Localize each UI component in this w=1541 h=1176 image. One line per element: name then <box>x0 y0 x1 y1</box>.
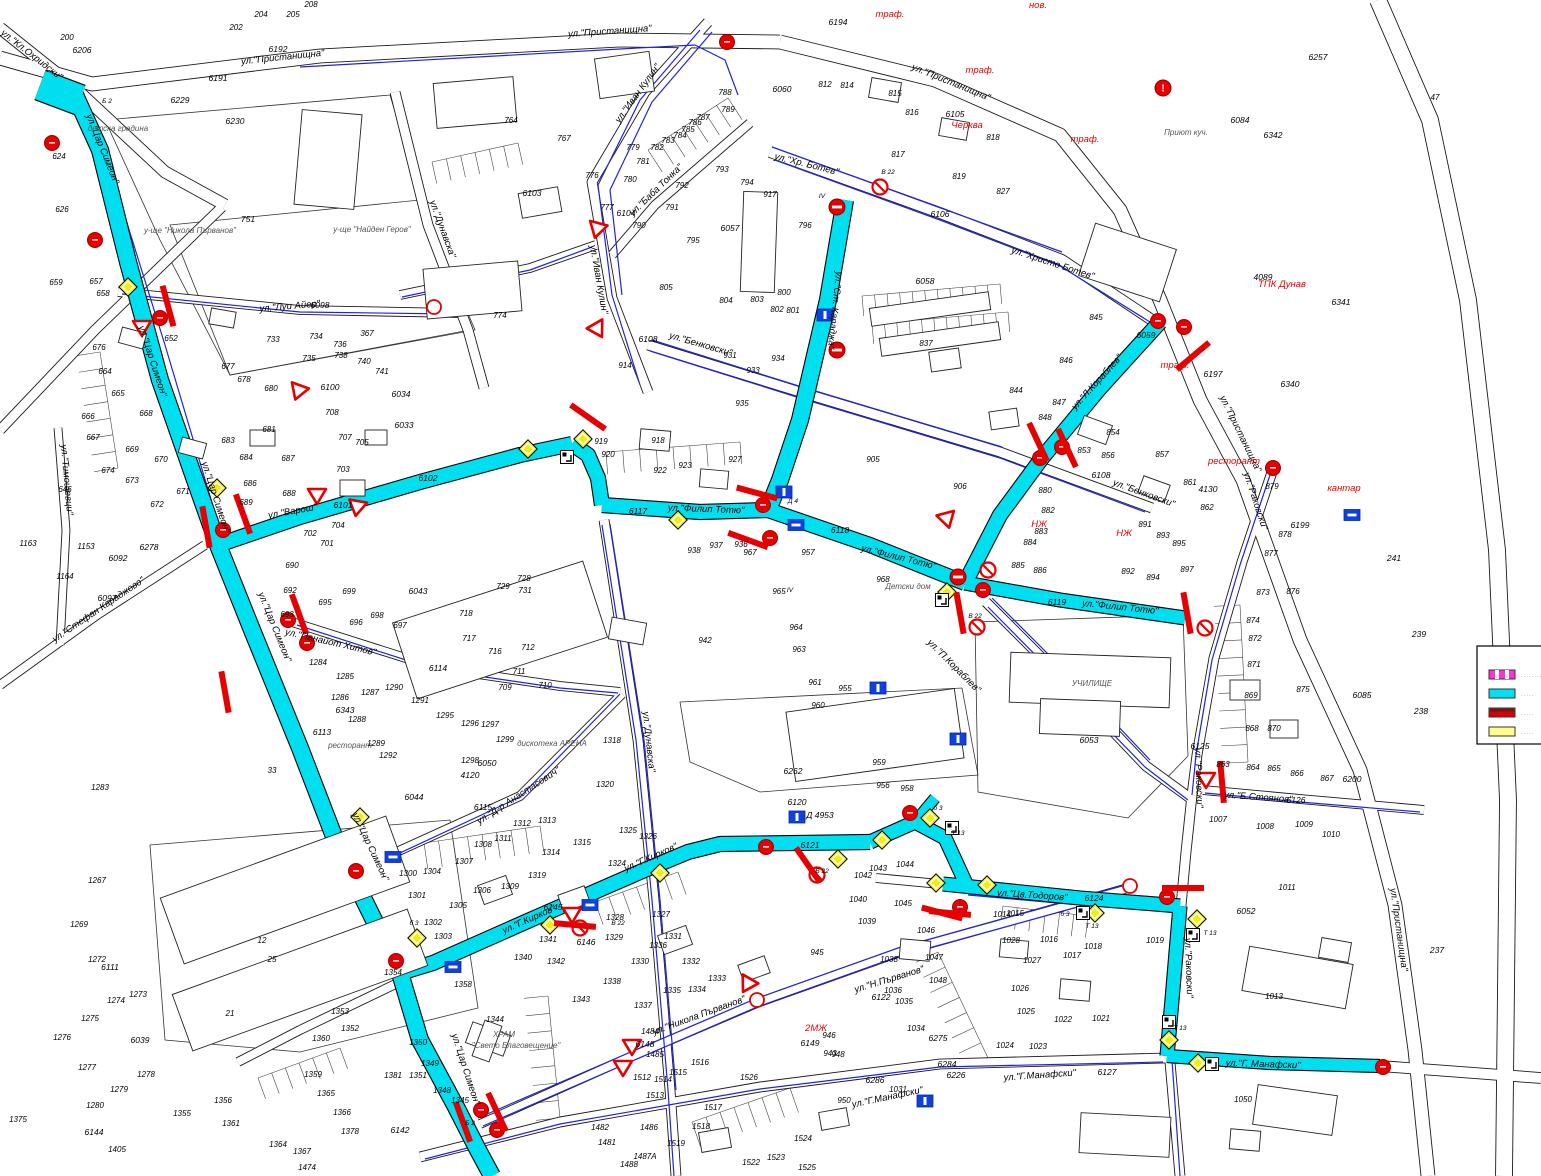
street-name-label: ул."Раковски" <box>1192 747 1205 809</box>
parcel-number-label: 1153 <box>77 542 95 551</box>
parcel-number-label: 1267 <box>88 876 106 885</box>
parcel-number-label: 1329 <box>605 933 623 942</box>
parcel-number-label: 25 <box>267 955 277 964</box>
parcel-number-label: 1015 <box>1006 909 1024 918</box>
sign-glyph <box>796 813 799 821</box>
sign-code-label: б 3 <box>409 919 418 927</box>
map-legend: · ························ <box>1477 646 1541 744</box>
parcel-number-label: 1348 <box>433 1086 451 1095</box>
layer-leg: · ························ <box>1477 646 1541 744</box>
parcel-number-label: 1022 <box>1054 1015 1072 1024</box>
road-closure-bar <box>1162 885 1204 891</box>
parcel-number-label: 938 <box>687 546 701 555</box>
parcel-number-label: 817 <box>891 150 905 159</box>
parcel-number-label: 950 <box>837 1096 851 1105</box>
parcel-number-label: 708 <box>325 408 339 417</box>
parcel-number-label: 1523 <box>767 1153 785 1162</box>
parcel-number-label: 1327 <box>652 910 670 919</box>
parcel-number-label: 1017 <box>1063 951 1081 960</box>
sign-glyph <box>49 142 55 144</box>
parcel-number-label: 869 <box>1244 691 1258 700</box>
street-code-label: 6050 <box>478 758 497 768</box>
parcel-number-label: 705 <box>355 438 369 447</box>
street-code-label: 6114 <box>429 663 448 673</box>
parcel-number-label: 1311 <box>494 834 511 843</box>
parcel-number-label: 1279 <box>110 1085 128 1094</box>
parcel-number-label: 1306 <box>473 886 491 895</box>
poi-label: "Свето Благовещение" <box>472 1041 562 1050</box>
parcel-number-label: 733 <box>266 335 280 344</box>
sign-glyph <box>449 966 458 969</box>
parcel-number-label: 1353 <box>331 1007 349 1016</box>
parcel-number-label: 33 <box>268 766 277 775</box>
parcel-number-label: 931 <box>723 351 736 360</box>
parcel-number-label: 845 <box>1089 313 1103 322</box>
parcel-number-label: 1305 <box>449 901 467 910</box>
parcel-number-label: 1295 <box>436 711 454 720</box>
sign-code-label: Т 13 <box>1173 1025 1186 1032</box>
parcel-number-label: 1272 <box>88 955 106 964</box>
legend-swatch-shade <box>1490 709 1514 712</box>
parcel-number-label: 920 <box>601 450 615 459</box>
street-code-label: 6197 <box>1204 369 1223 379</box>
street-code-label: 6039 <box>131 1035 150 1045</box>
parcel-number-label: 664 <box>98 367 112 376</box>
parcel-number-label: 957 <box>801 548 815 557</box>
cadastral-map-view[interactable]: !ул."Кл.Охридски"ул."Пристанищна"ул."При… <box>0 0 1541 1176</box>
sign-glyph <box>563 453 567 457</box>
parcel-number-label: 919 <box>594 437 608 446</box>
parcel-number-label: 702 <box>303 529 317 538</box>
legend-swatch-yellow <box>1489 727 1515 736</box>
parcel-number-label: 1036 <box>884 986 902 995</box>
parcel-number-label: 673 <box>125 476 139 485</box>
building-footprint <box>929 348 961 372</box>
parcel-number-label: 933 <box>746 366 760 375</box>
parcel-number-label: 1326 <box>639 832 657 841</box>
parcel-number-label: 712 <box>521 643 535 652</box>
parcel-number-label: 1360 <box>312 1034 330 1043</box>
parcel-number-label: 848 <box>1038 413 1052 422</box>
street-code-label: 4130 <box>1199 484 1218 494</box>
parcel-number-label: 804 <box>719 296 733 305</box>
parcel-number-label: 1034 <box>907 1024 925 1033</box>
parcel-number-label: 1405 <box>108 1145 126 1154</box>
parcel-number-label: 873 <box>1256 588 1270 597</box>
street-name-label: ул."Раковски" <box>1182 937 1195 999</box>
parcel-number-label: 793 <box>715 165 729 174</box>
parcel-number-label: 891 <box>1138 520 1151 529</box>
street-code-label: 6098 <box>311 300 330 310</box>
legend-swatch-gap <box>1505 670 1509 679</box>
parcel-number-label: 967 <box>743 548 757 557</box>
parcel-number-label: 689 <box>239 498 253 507</box>
sign-glyph <box>948 824 952 828</box>
parcel-number-label: 1299 <box>496 735 514 744</box>
sign-glyph <box>389 856 398 859</box>
legend-swatch-magenta-dashed <box>1489 670 1515 679</box>
street-code-label: 6044 <box>405 792 424 802</box>
parcel-number-label: 707 <box>338 433 352 442</box>
street-code-label: 6145 <box>544 902 563 912</box>
street-code-label: 6127 <box>1098 1067 1117 1077</box>
street-code-label: 6092 <box>109 553 128 563</box>
parcel-number-label: 802 <box>770 305 784 314</box>
parcel-number-label: 914 <box>618 361 632 370</box>
parcel-number-label: 1488 <box>620 1160 638 1169</box>
sign-glyph <box>938 596 942 600</box>
parcel-number-label: 652 <box>164 334 178 343</box>
sign-glyph <box>907 812 913 814</box>
street-code-label: 6059 <box>1137 330 1156 340</box>
parcel-number-label: 717 <box>462 634 476 643</box>
parcel-number-label: 960 <box>811 701 825 710</box>
parcel-number-label: 956 <box>876 781 890 790</box>
parcel-number-label: 934 <box>771 354 785 363</box>
street-code-label: 237 <box>1429 945 1444 955</box>
parcel-number-label: 686 <box>243 479 257 488</box>
parcel-number-label: 709 <box>498 683 512 692</box>
street-code-label: 6118 <box>831 525 850 535</box>
parcel-number-label: 906 <box>953 482 967 491</box>
street-code-label: 6057 <box>721 223 740 233</box>
parcel-number-label: 1358 <box>454 980 472 989</box>
parcel-number-label: 1474 <box>298 1163 316 1172</box>
parcel-number-label: 704 <box>331 521 345 530</box>
parcel-number-label: 1337 <box>634 1001 652 1010</box>
street-code-label: 6341 <box>1332 297 1351 307</box>
parcel-number-label: 846 <box>1059 356 1073 365</box>
legend-swatch-cyan <box>1489 689 1515 698</box>
parcel-number-label: 1300 <box>399 869 417 878</box>
sign-glyph <box>760 504 766 506</box>
parcel-number-label: 678 <box>237 375 251 384</box>
parcel-number-label: 1315 <box>573 838 591 847</box>
street-code-label: 751 <box>241 214 255 224</box>
street-code-label: 6113 <box>313 727 332 737</box>
street-code-label: 6342 <box>1264 130 1283 140</box>
parcel-number-label: 874 <box>1246 616 1260 625</box>
parcel-number-label: 844 <box>1009 386 1023 395</box>
parcel-number-label: 862 <box>1200 503 1214 512</box>
parcel-number-label: 728 <box>517 574 531 583</box>
sign-code-label: Д 4 <box>787 498 798 505</box>
street-code-label: 6206 <box>73 45 92 55</box>
parcel-number-label: 780 <box>623 175 637 184</box>
parcel-number-label: 1344 <box>486 1015 504 1024</box>
parcel-number-label: 1296 <box>461 719 479 728</box>
parcel-number-label: 854 <box>1106 428 1120 437</box>
parcel-number-label: 690 <box>285 561 299 570</box>
sign-code-label: Б 2 <box>465 1120 475 1127</box>
street-code-label: 6102 <box>419 473 438 483</box>
parcel-number-label: 777 <box>600 203 614 212</box>
street-code-label: 6126 <box>1287 795 1306 805</box>
street-code-label: 6257 <box>1309 52 1328 62</box>
red-note-label: траф. <box>876 9 905 20</box>
parcel-number-label: 1324 <box>608 859 626 868</box>
sign-glyph <box>783 488 786 496</box>
street-code-label: 6284 <box>938 1059 957 1069</box>
street-code-label: 6192 <box>269 44 288 54</box>
parcel-number-label: 801 <box>786 306 799 315</box>
parcel-number-label: 1018 <box>1084 942 1102 951</box>
parcel-number-label: 1526 <box>740 1073 758 1082</box>
parcel-number-label: 208 <box>303 0 318 9</box>
parcel-number-label: 781 <box>636 157 649 166</box>
sign-glyph <box>393 960 399 962</box>
parcel-number-label: 1027 <box>1023 956 1041 965</box>
parcel-number-label: 923 <box>678 461 692 470</box>
street-code-label: 6120 <box>788 797 807 807</box>
parcel-number-label: 1364 <box>269 1140 287 1149</box>
parcel-number-label: 963 <box>792 645 806 654</box>
parcel-number-label: 857 <box>1155 450 1169 459</box>
sign-code-label: б 3 <box>933 804 942 812</box>
parcel-number-label: 880 <box>1038 486 1052 495</box>
sign-code-label: б 3 <box>1060 910 1069 918</box>
circle-sign-icon <box>427 300 441 314</box>
parcel-number-label: 1286 <box>331 693 349 702</box>
parcel-number-label: 968 <box>876 575 890 584</box>
parcel-number-label: 692 <box>283 586 297 595</box>
parcel-number-label: 669 <box>125 445 139 454</box>
red-note-label: ресторант <box>1207 456 1260 467</box>
parcel-number-label: 877 <box>1264 549 1278 558</box>
sign-glyph <box>1208 1060 1212 1064</box>
building-footprint <box>1079 1113 1171 1158</box>
parcel-number-label: 626 <box>55 205 69 214</box>
parcel-number-label: 776 <box>585 171 599 180</box>
parcel-number-label: 1361 <box>222 1119 240 1128</box>
street-code-label: 6146 <box>577 937 596 947</box>
parcel-number-label: 917 <box>763 190 777 199</box>
parcel-number-label: 764 <box>504 116 518 125</box>
parcel-number-label: 701 <box>320 539 333 548</box>
parcel-number-label: 1016 <box>1040 935 1058 944</box>
parcel-number-label: 1516 <box>691 1058 709 1067</box>
parcel-number-label: 861 <box>1183 478 1196 487</box>
parcel-number-label: 1356 <box>214 1096 232 1105</box>
parcel-number-label: 1007 <box>1209 815 1227 824</box>
legend-swatch-red <box>1489 708 1515 717</box>
parcel-number-label: 1164 <box>56 572 74 581</box>
parcel-number-label: 1008 <box>1256 822 1274 831</box>
street-code-label: 6100 <box>321 382 340 392</box>
building-footprint <box>740 191 777 292</box>
parcel-number-label: 866 <box>1290 769 1304 778</box>
poi-label: Детски дом <box>884 582 931 591</box>
parcel-number-label: 935 <box>735 399 749 408</box>
parcel-number-label: 1275 <box>81 1014 99 1023</box>
parcel-number-label: 816 <box>905 108 919 117</box>
street-code-label: 6034 <box>392 389 411 399</box>
parcel-number-label: 1342 <box>547 957 565 966</box>
sign-code-label: Т 13 <box>1203 930 1216 937</box>
parcel-number-label: 875 <box>1296 685 1310 694</box>
parcel-number-label: 1304 <box>423 867 441 876</box>
parcel-number-label: 885 <box>1011 561 1025 570</box>
parcel-number-label: 205 <box>285 10 300 19</box>
sign-glyph <box>724 41 730 43</box>
parcel-number-label: 1365 <box>317 1089 335 1098</box>
parcel-number-label: 1307 <box>455 857 473 866</box>
building-footprint <box>340 480 365 496</box>
parcel-number-label: 1301 <box>408 891 426 900</box>
poi-label: УЧИЛИЩЕ <box>1071 679 1113 688</box>
parcel-number-label: 683 <box>221 436 235 445</box>
parcel-number-label: 1044 <box>896 860 914 869</box>
parcel-number-label: 1284 <box>309 658 327 667</box>
parcel-number-label: 1375 <box>9 1115 27 1124</box>
parcel-number-label: 767 <box>557 134 571 143</box>
building-footprint <box>294 110 362 210</box>
street-code-label: 6340 <box>1281 379 1300 389</box>
street-code-label: 6142 <box>391 1125 410 1135</box>
parcel-number-label: 897 <box>1180 565 1194 574</box>
parcel-number-label: 1366 <box>333 1108 351 1117</box>
parcel-number-label: 1334 <box>688 985 706 994</box>
parcel-number-label: 1021 <box>1092 1014 1110 1023</box>
parcel-number-label: 1291 <box>411 696 429 705</box>
parcel-number-label: 1276 <box>53 1033 71 1042</box>
red-note-label: траф. <box>1161 360 1190 371</box>
sign-glyph <box>767 537 773 539</box>
parcel-number-label: 876 <box>1286 587 1300 596</box>
parcel-number-label: 1524 <box>794 1134 812 1143</box>
parcel-number-label: 1522 <box>742 1158 760 1167</box>
parcel-number-label: 1283 <box>91 783 109 792</box>
parcel-number-label: 1332 <box>682 957 700 966</box>
sign-glyph <box>924 1097 927 1105</box>
legend-item-label: ····· <box>1521 693 1534 699</box>
street-code-label: 6144 <box>85 1127 104 1137</box>
parcel-number-label: 667 <box>86 433 100 442</box>
street-code-label: 241 <box>1386 553 1401 563</box>
sign-code-label: IV <box>819 193 826 200</box>
parcel-number-label: 1313 <box>538 816 556 825</box>
sign-code-label: В 22 <box>611 920 625 927</box>
parcel-number-label: 774 <box>493 311 507 320</box>
parcel-number-label: 1013 <box>1265 992 1283 1001</box>
parcel-number-label: 736 <box>333 340 347 349</box>
parcel-number-label: 666 <box>81 412 95 421</box>
parcel-number-label: 1513 <box>646 1091 664 1100</box>
parcel-number-label: 680 <box>264 384 278 393</box>
parcel-number-label: 738 <box>334 351 348 360</box>
parcel-number-label: 1025 <box>1017 1007 1035 1016</box>
parcel-number-label: 1043 <box>869 864 887 873</box>
parcel-number-label: 865 <box>1267 764 1281 773</box>
parcel-number-label: 1355 <box>173 1109 191 1118</box>
street-code-label: 6226 <box>947 1070 966 1080</box>
parcel-number-label: 818 <box>986 133 1000 142</box>
parcel-number-label: 1518 <box>692 1122 710 1131</box>
street-code-label: 6104 <box>617 208 636 218</box>
parcel-number-label: 796 <box>798 221 812 230</box>
sign-code-label: В 22 <box>968 613 982 620</box>
poi-label: дискотека АРЕНА <box>517 739 587 748</box>
parcel-number-label: 1354 <box>384 968 402 977</box>
parcel-number-label: 787 <box>696 113 710 122</box>
parcel-number-label: 964 <box>789 623 803 632</box>
street-code-label: 6149 <box>801 1038 820 1048</box>
sign-glyph <box>1348 514 1357 517</box>
parcel-number-label: 878 <box>1278 530 1292 539</box>
parcel-number-label: 734 <box>309 332 323 341</box>
cadastral-map-canvas[interactable]: !ул."Кл.Охридски"ул."Пристанищна"ул."При… <box>0 0 1541 1176</box>
parcel-number-label: 1336 <box>649 941 667 950</box>
poi-label: у-ще "Никола Първанов" <box>143 226 237 235</box>
parcel-number-label: 1050 <box>1234 1095 1252 1104</box>
sign-glyph <box>877 684 880 692</box>
parcel-number-label: 884 <box>1023 538 1037 547</box>
street-code-label: 6097 <box>98 593 117 603</box>
red-note-label: нов. <box>1029 0 1047 11</box>
sign-code-label: Т 13 <box>951 830 964 837</box>
parcel-number-label: 794 <box>740 178 754 187</box>
sign-glyph <box>824 311 827 319</box>
parcel-number-label: 1298 <box>461 756 479 765</box>
street-code-label: 6108 <box>639 334 658 344</box>
parcel-number-label: 1287 <box>361 688 379 697</box>
parcel-number-label: 791 <box>665 203 678 212</box>
parcel-number-label: 1046 <box>917 926 935 935</box>
parcel-number-label: 687 <box>281 454 295 463</box>
sign-glyph: ! <box>1161 84 1164 95</box>
parcel-number-label: 670 <box>154 455 168 464</box>
parcel-number-label: 863 <box>1216 760 1230 769</box>
parcel-number-label: 792 <box>675 181 689 190</box>
street-code-label: 6191 <box>209 73 228 83</box>
parcel-number-label: 882 <box>1041 506 1055 515</box>
parcel-number-label: 918 <box>651 436 665 445</box>
legend-item-label: ····· <box>1521 731 1534 737</box>
parcel-number-label: 895 <box>1172 539 1186 548</box>
legend-swatch-gap <box>1495 670 1499 679</box>
parcel-number-label: 1335 <box>663 986 681 995</box>
poi-label: ресторант <box>327 741 372 750</box>
parcel-number-label: 819 <box>952 172 966 181</box>
parcel-number-label: 1320 <box>596 780 614 789</box>
poi-label: ХРАМ <box>492 1030 515 1039</box>
parcel-number-label: 695 <box>318 598 332 607</box>
parcel-number-label: 1352 <box>341 1024 359 1033</box>
legend-swatch-rect <box>1489 727 1515 736</box>
sign-code-label: Б 2 <box>102 98 112 105</box>
parcel-number-label: 688 <box>282 489 296 498</box>
parcel-number-label: 1038 <box>880 955 898 964</box>
parcel-number-label: 659 <box>49 278 63 287</box>
parcel-number-label: 1517 <box>704 1103 722 1112</box>
parcel-number-label: 815 <box>888 89 902 98</box>
parcel-number-label: 1028 <box>1002 936 1020 945</box>
parcel-number-label: 672 <box>150 500 164 509</box>
sign-glyph <box>1380 1066 1386 1068</box>
street-code-label: 6060 <box>773 84 792 94</box>
red-note-label: траф. <box>966 65 995 76</box>
parcel-number-label: 693 <box>280 610 294 619</box>
sign-glyph <box>953 576 963 579</box>
street-code-label: 6278 <box>140 542 159 552</box>
parcel-number-label: 12 <box>258 936 267 945</box>
parcel-number-label: 671 <box>176 487 189 496</box>
legend-swatch-rect <box>1489 689 1515 698</box>
street-code-label: 6106 <box>931 209 950 219</box>
parcel-number-label: 1290 <box>385 683 403 692</box>
parcel-number-label: 1289 <box>367 739 385 748</box>
parcel-number-label: 1512 <box>633 1073 651 1082</box>
